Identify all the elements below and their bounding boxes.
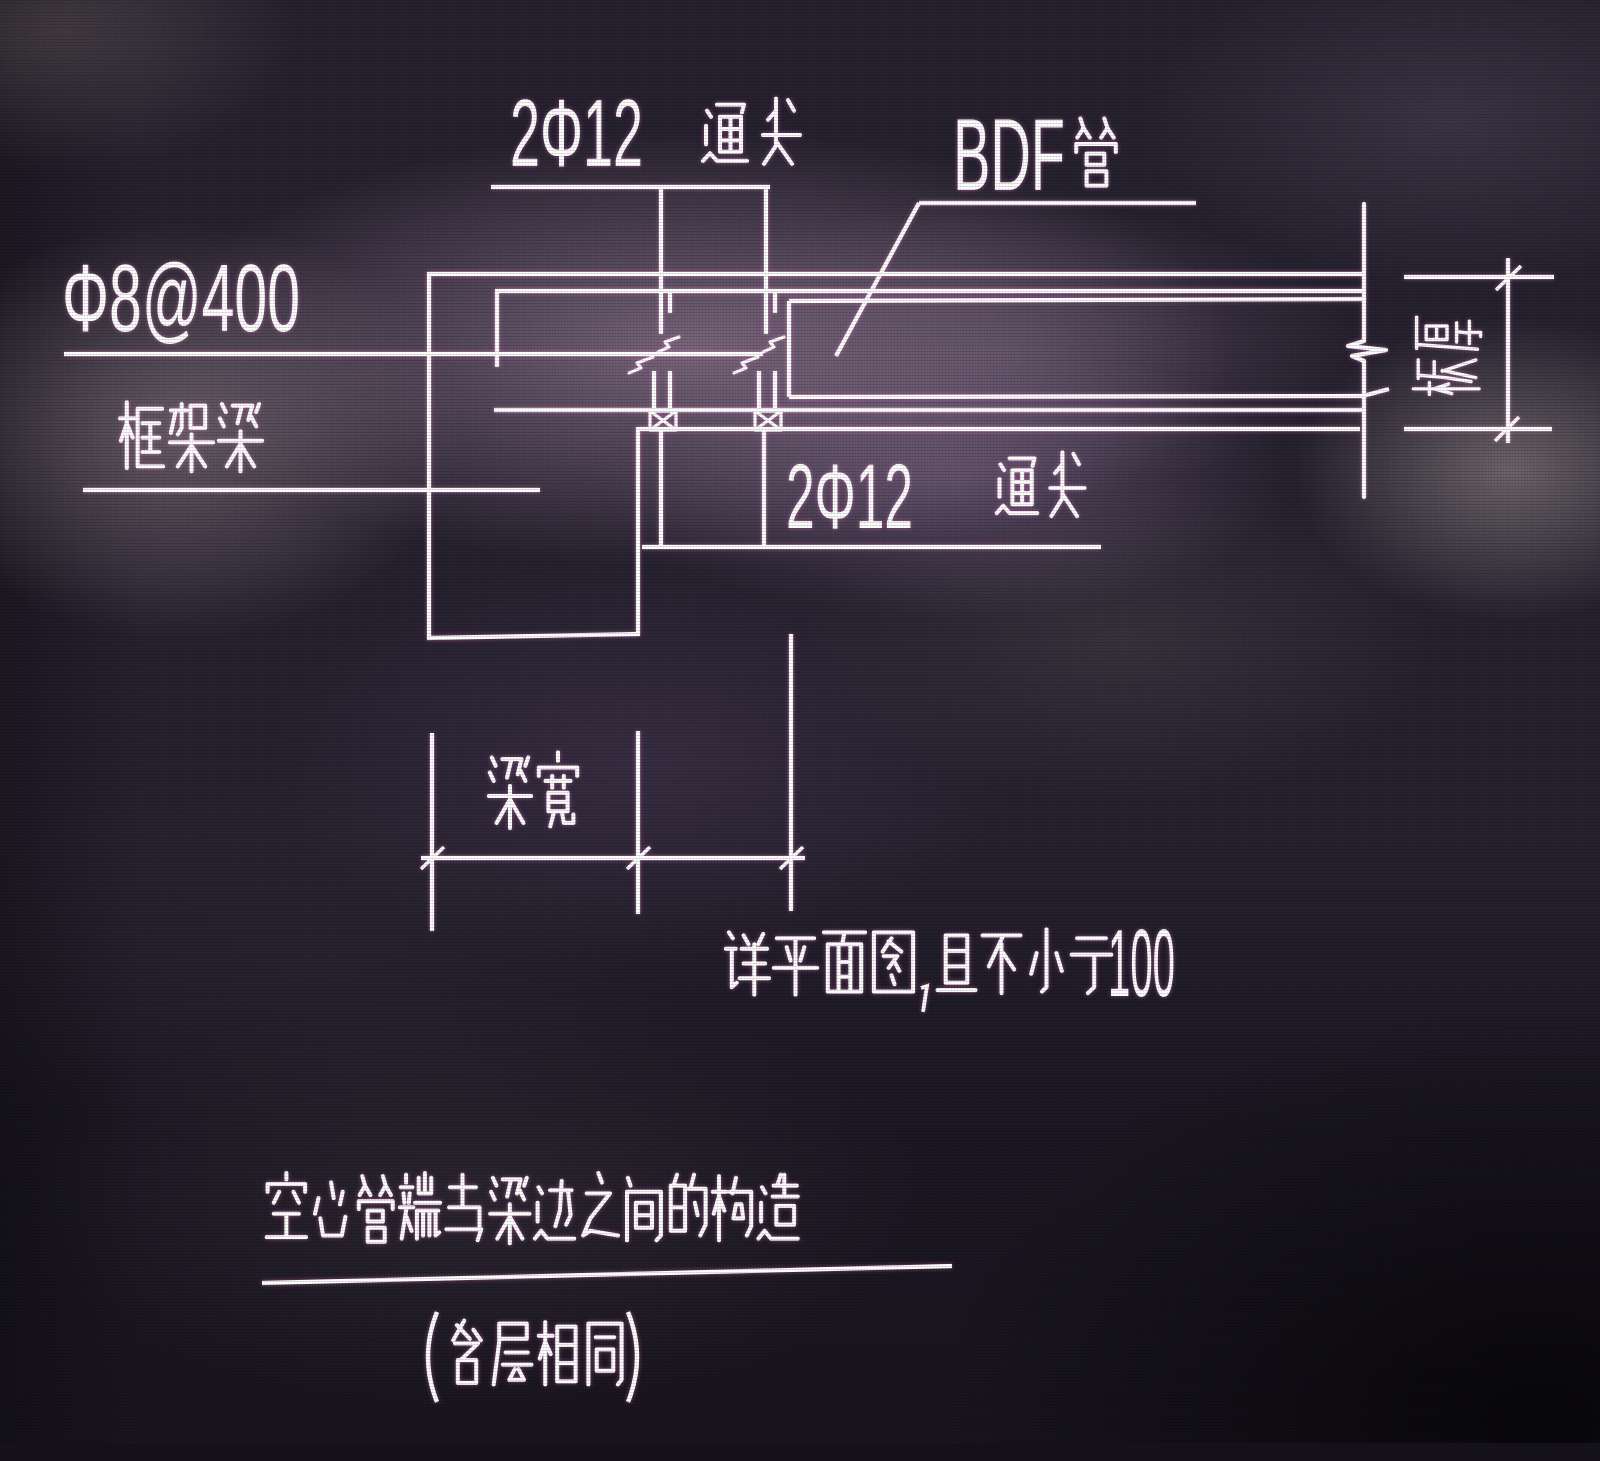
svg-text:BDF: BDF	[953, 98, 1065, 212]
svg-text:100: 100	[1108, 910, 1175, 1017]
svg-text:2Φ12: 2Φ12	[510, 80, 643, 187]
svg-text:Φ8@400: Φ8@400	[62, 245, 300, 352]
svg-text:2Φ12: 2Φ12	[786, 446, 913, 548]
